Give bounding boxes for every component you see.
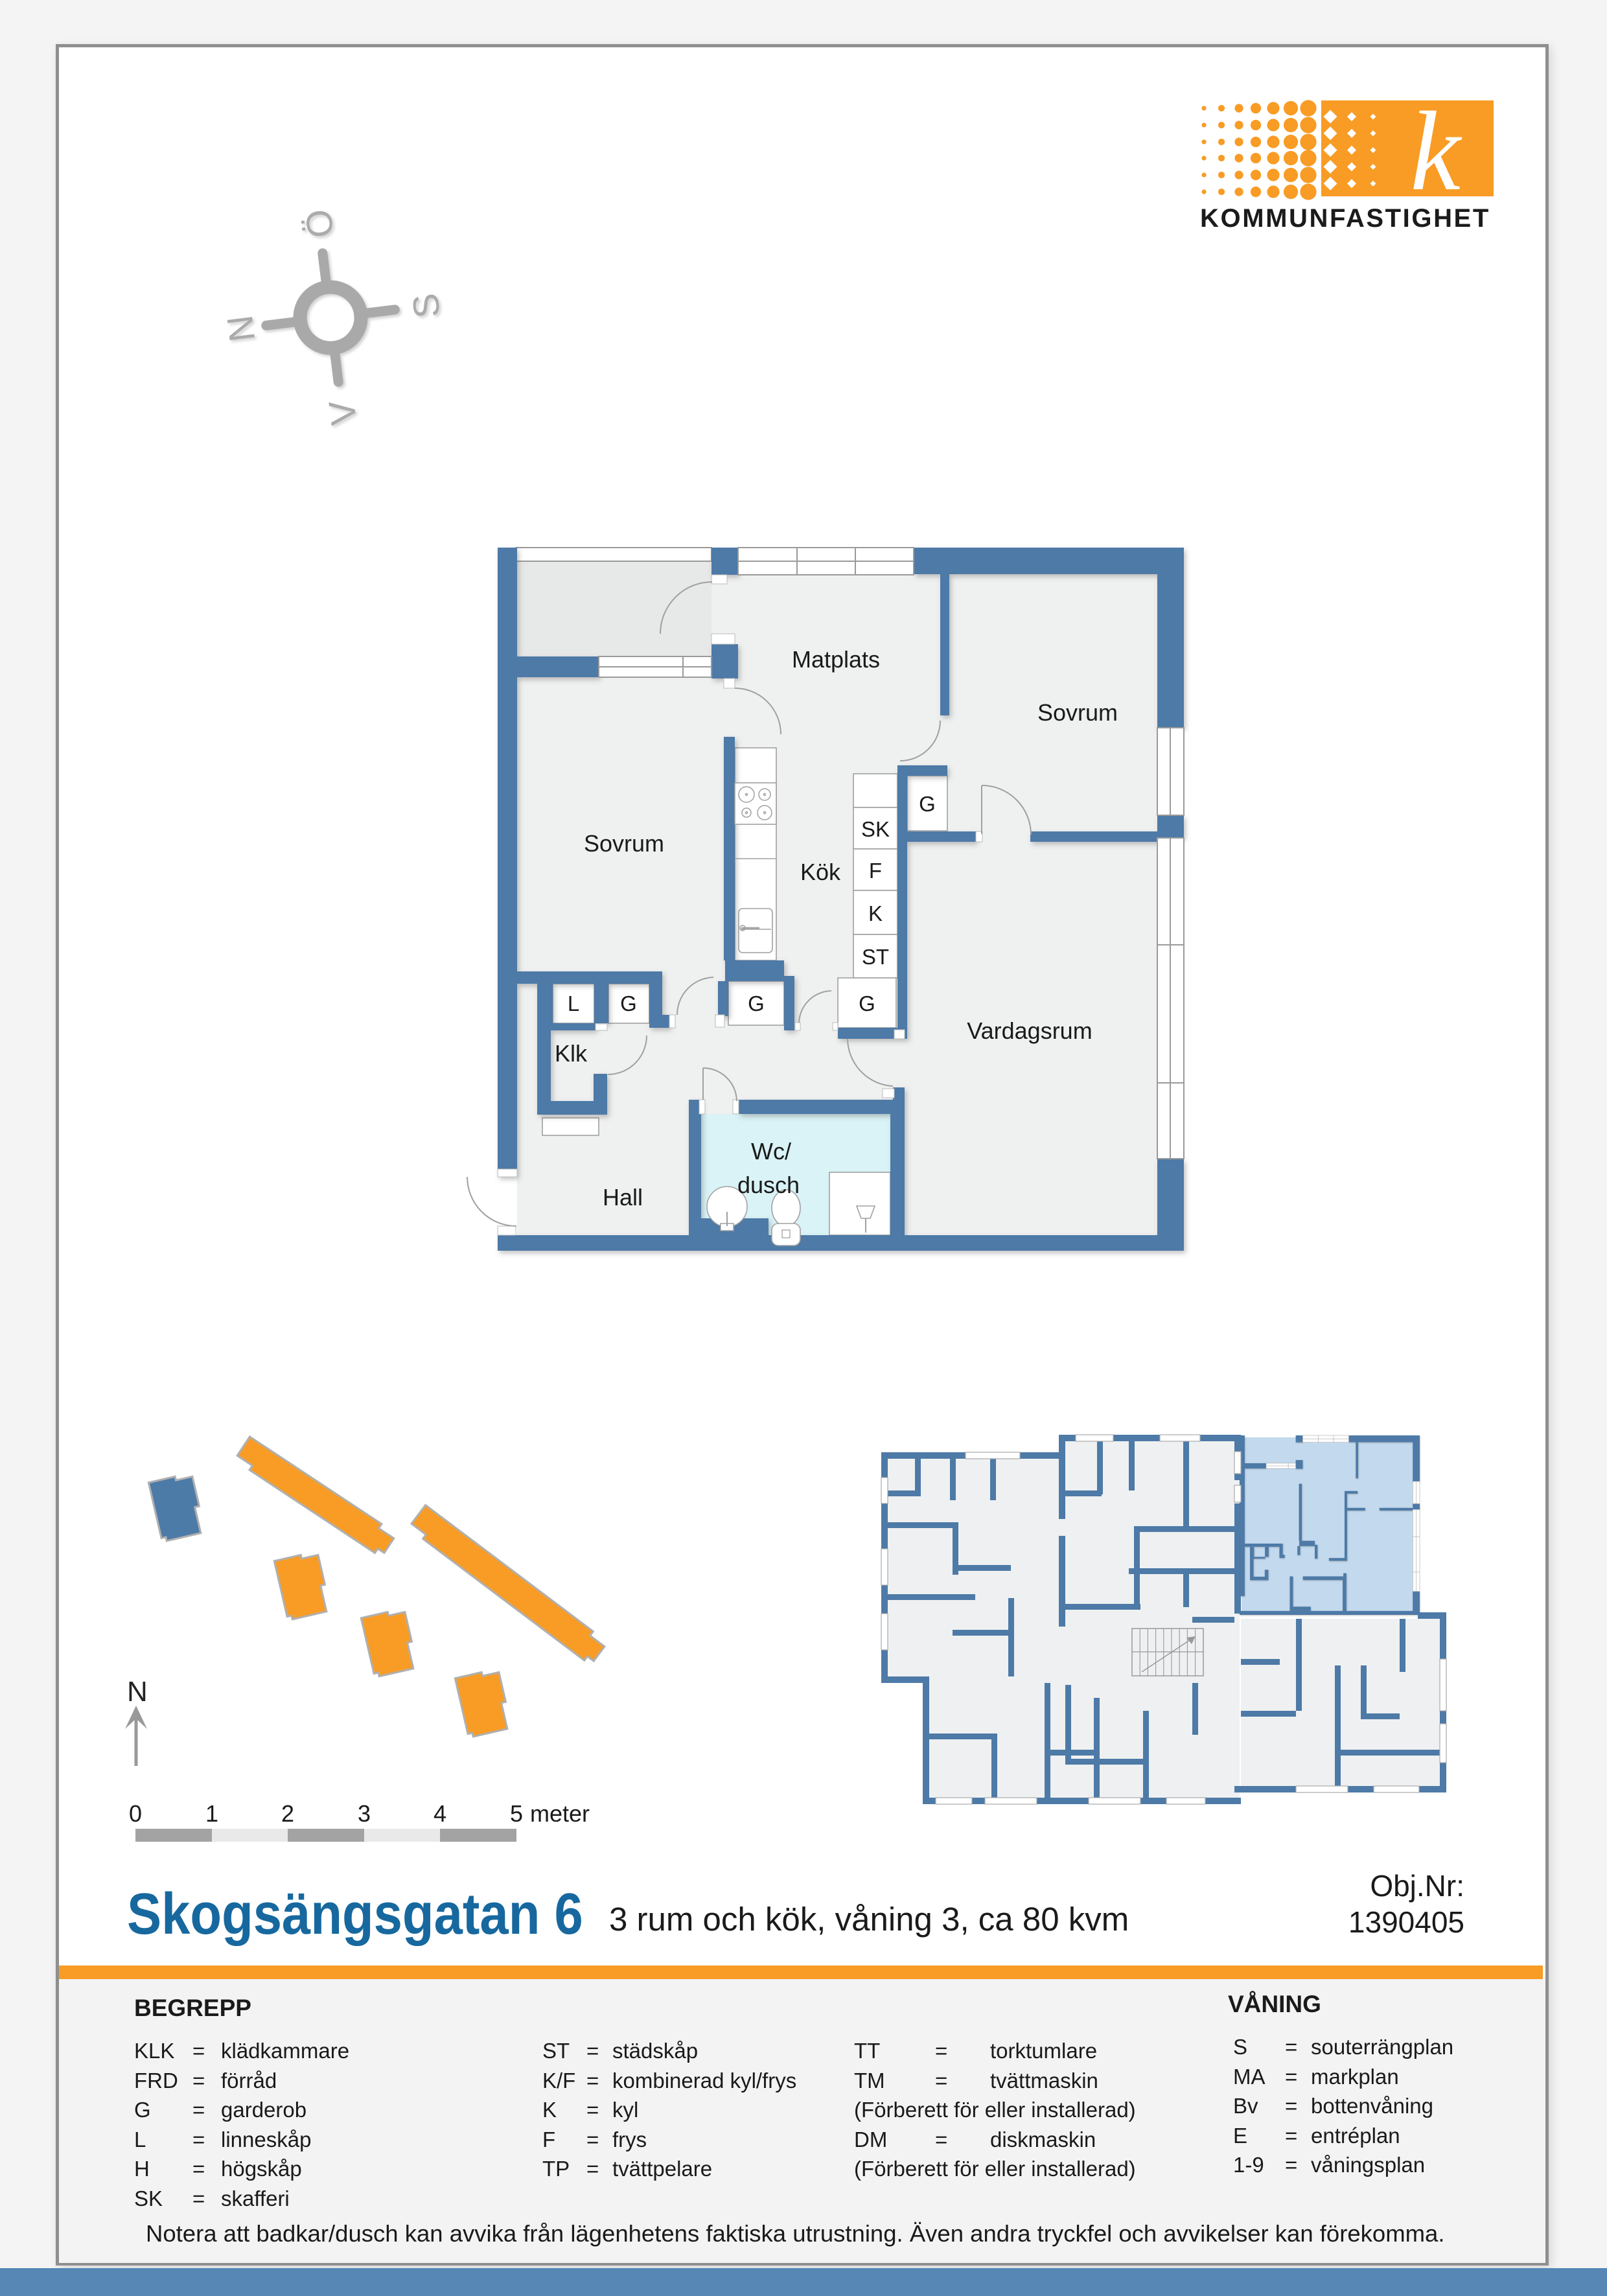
svg-text:dusch: dusch (737, 1172, 800, 1198)
svg-text:N: N (219, 313, 262, 344)
svg-text:S: S (404, 292, 448, 321)
svg-text:Kök: Kök (800, 859, 841, 885)
svg-text:Wc/: Wc/ (751, 1138, 791, 1165)
svg-text:G: G (620, 991, 637, 1015)
svg-text:G: G (748, 991, 765, 1015)
svg-text:SK: SK (861, 817, 890, 841)
svg-text:Hall: Hall (603, 1184, 643, 1211)
svg-text:G: G (859, 991, 875, 1015)
svg-text:Matplats: Matplats (792, 646, 880, 673)
svg-text:Sovrum: Sovrum (584, 830, 664, 857)
svg-text:L: L (568, 991, 579, 1015)
svg-text:ST: ST (862, 945, 889, 969)
svg-text:k: k (1410, 88, 1462, 214)
svg-text:Ö: Ö (297, 207, 341, 240)
svg-text:Vardagsrum: Vardagsrum (967, 1017, 1092, 1044)
svg-text:K: K (868, 901, 883, 925)
svg-text:F: F (869, 859, 882, 883)
svg-text:N: N (127, 1676, 148, 1708)
svg-text:V: V (321, 398, 364, 427)
svg-text:Sovrum: Sovrum (1037, 699, 1118, 726)
svg-text:Klk: Klk (555, 1040, 588, 1067)
svg-text:G: G (919, 792, 936, 816)
svg-text:KOMMUNFASTIGHET: KOMMUNFASTIGHET (1200, 204, 1490, 233)
